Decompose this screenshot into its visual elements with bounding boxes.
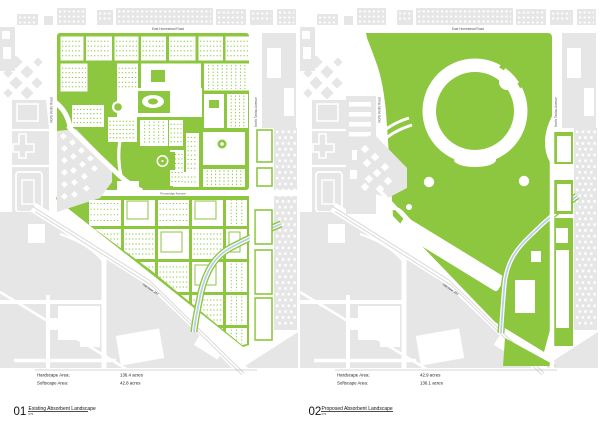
svg-text:North Wolfe Road: North Wolfe Road bbox=[378, 97, 382, 123]
svg-text:136.1 acres: 136.1 acres bbox=[420, 381, 444, 386]
svg-text:East Homestead Road: East Homestead Road bbox=[152, 27, 184, 31]
svg-text:42.8 acres: 42.8 acres bbox=[120, 381, 141, 386]
svg-text:Existing Absorbent Landscape: Existing Absorbent Landscape bbox=[29, 406, 96, 412]
svg-text:42.9 acres: 42.9 acres bbox=[420, 372, 441, 377]
svg-text:North Wolfe Road: North Wolfe Road bbox=[50, 97, 54, 123]
svg-text:Softscape Area:: Softscape Area: bbox=[37, 381, 68, 386]
svg-text:Softscape Area:: Softscape Area: bbox=[337, 381, 368, 386]
svg-text:North Tantau Avenue: North Tantau Avenue bbox=[554, 97, 558, 127]
svg-text:02: 02 bbox=[309, 406, 322, 418]
svg-text:Hardscape Area:: Hardscape Area: bbox=[37, 372, 70, 377]
svg-text:NTS: NTS bbox=[322, 413, 327, 416]
svg-text:136.4 acres: 136.4 acres bbox=[120, 372, 144, 377]
svg-text:Pruneridge Avenue: Pruneridge Avenue bbox=[160, 192, 186, 196]
svg-text:NTS: NTS bbox=[29, 413, 34, 416]
svg-text:01: 01 bbox=[14, 406, 27, 418]
svg-text:Hardscape Area:: Hardscape Area: bbox=[337, 372, 370, 377]
svg-text:Proposed Absorbent Landscape: Proposed Absorbent Landscape bbox=[322, 406, 393, 412]
svg-text:East Homestead Road: East Homestead Road bbox=[452, 27, 484, 31]
svg-text:North Tantau Avenue: North Tantau Avenue bbox=[254, 97, 258, 127]
